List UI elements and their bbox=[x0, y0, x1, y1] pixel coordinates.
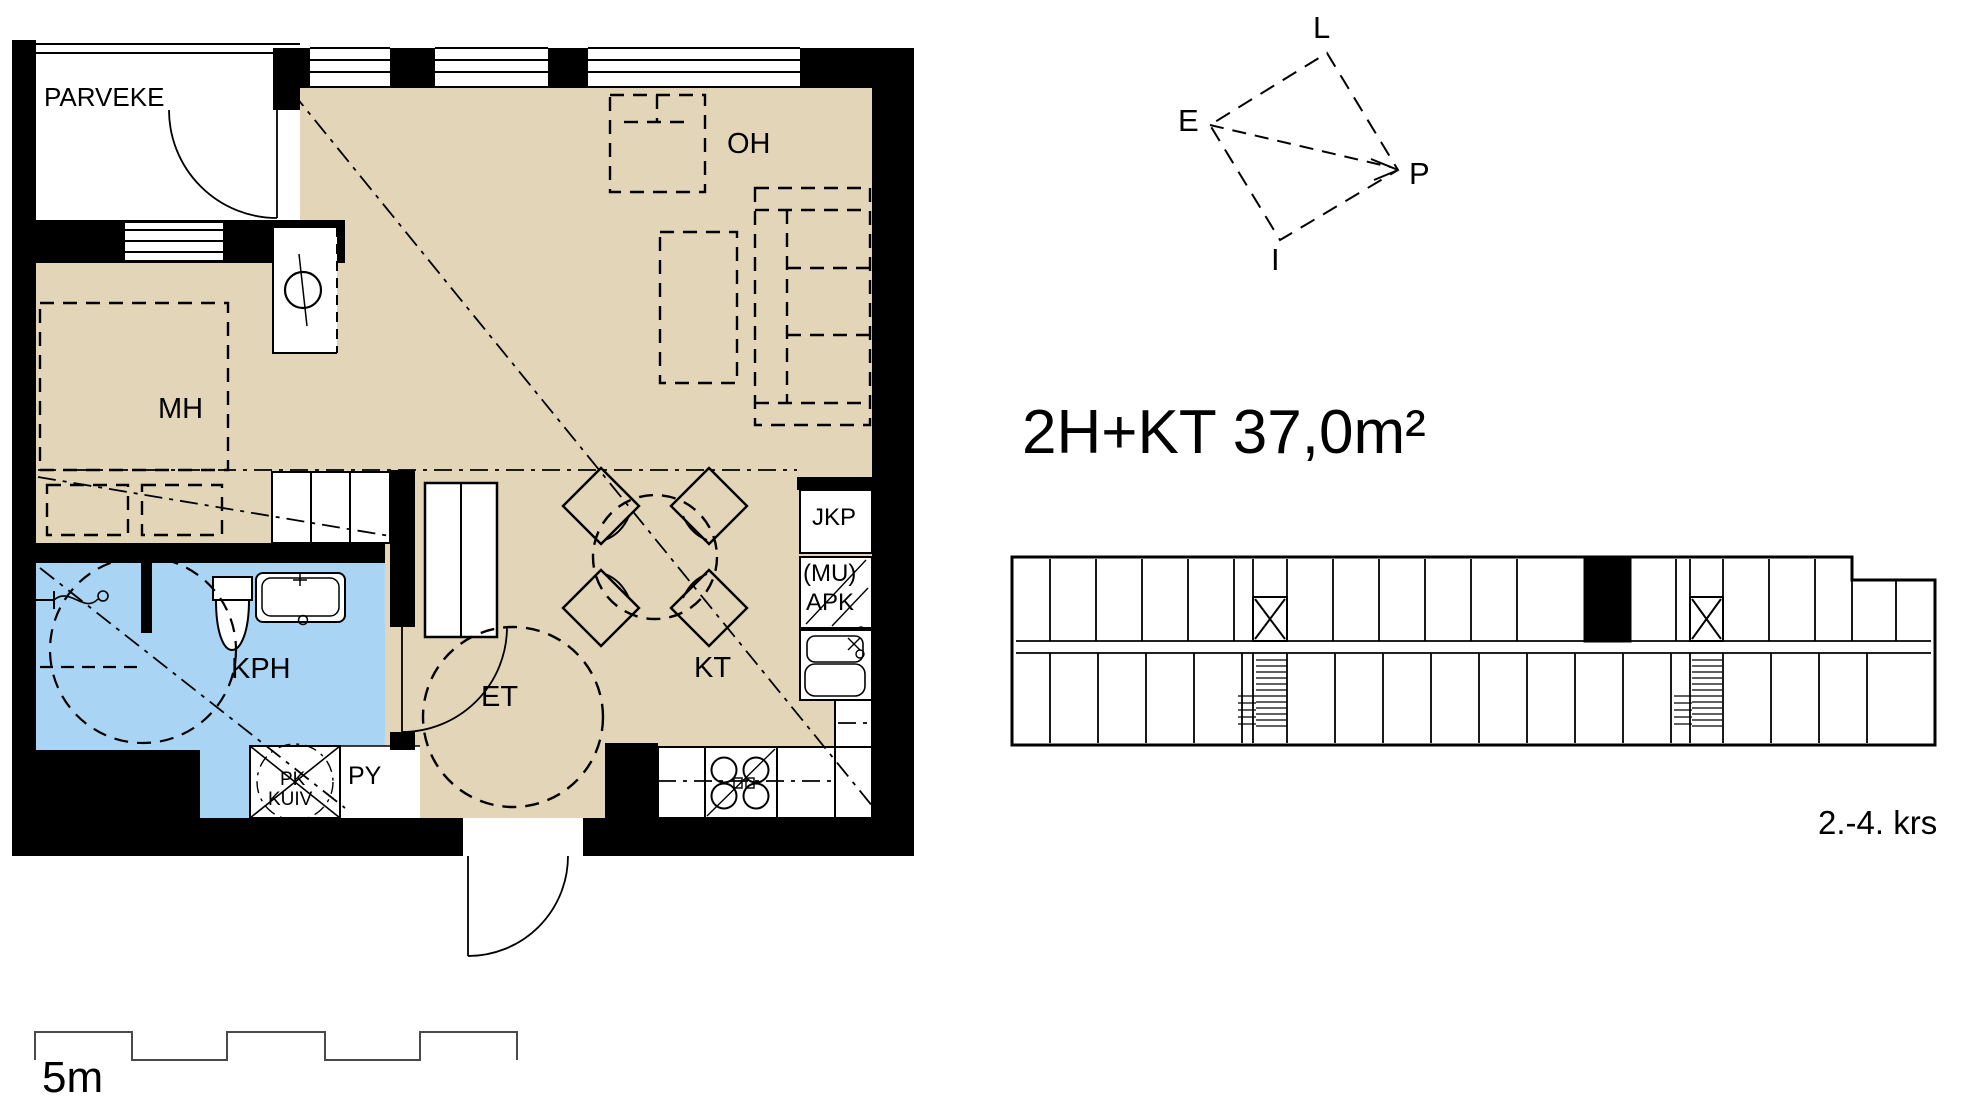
duct-cabinet bbox=[273, 227, 337, 353]
fixture-label-laundry: PY bbox=[348, 764, 381, 789]
compass-rose bbox=[1210, 53, 1398, 240]
compass-label-e: E bbox=[1178, 105, 1199, 136]
scale-bar bbox=[35, 1032, 517, 1060]
floor-range-label: 2.-4. krs bbox=[1818, 806, 1937, 839]
room-label-bedroom: MH bbox=[158, 395, 203, 424]
room-label-bathroom: KPH bbox=[231, 655, 291, 684]
window-bedroom bbox=[125, 223, 223, 260]
room-label-living: OH bbox=[727, 130, 771, 159]
floor-fills bbox=[36, 60, 872, 818]
north-arrow bbox=[1210, 125, 1390, 167]
floor-plan-drawing bbox=[0, 0, 1971, 1106]
highlighted-unit bbox=[1585, 559, 1630, 641]
window-top-1 bbox=[310, 42, 390, 88]
balcony-door bbox=[169, 110, 277, 218]
fixture-label-washer: PK bbox=[280, 770, 305, 789]
stove bbox=[705, 747, 777, 818]
fixture-label-microwave: (MU) bbox=[803, 562, 856, 586]
entrance-door bbox=[463, 818, 583, 956]
building-overview bbox=[1012, 557, 1935, 745]
scale-label: 5m bbox=[42, 1056, 103, 1100]
room-label-kitchenette: KT bbox=[694, 654, 731, 683]
hall-closet bbox=[425, 483, 497, 637]
apartment-title: 2H+KT 37,0m² bbox=[1022, 402, 1426, 464]
fixture-label-fridge: JKP bbox=[812, 506, 856, 530]
window-top-2 bbox=[435, 42, 548, 88]
bathroom-sink bbox=[256, 573, 345, 625]
compass-label-i: I bbox=[1271, 244, 1280, 275]
compass-label-l: L bbox=[1313, 12, 1330, 43]
room-label-balcony: PARVEKE bbox=[44, 84, 164, 110]
fixture-label-dryer: KUIV bbox=[268, 790, 312, 809]
floor-plan-sheet: PARVEKE OH MH KPH ET KT JKP (MU) APK PY … bbox=[0, 0, 1971, 1106]
room-label-entry: ET bbox=[481, 683, 518, 712]
window-top-3 bbox=[588, 42, 800, 88]
compass-label-p: P bbox=[1409, 158, 1430, 189]
balcony-railing bbox=[36, 44, 300, 53]
kitchen-sink bbox=[800, 630, 872, 700]
fixture-label-dishwasher: APK bbox=[806, 591, 854, 615]
